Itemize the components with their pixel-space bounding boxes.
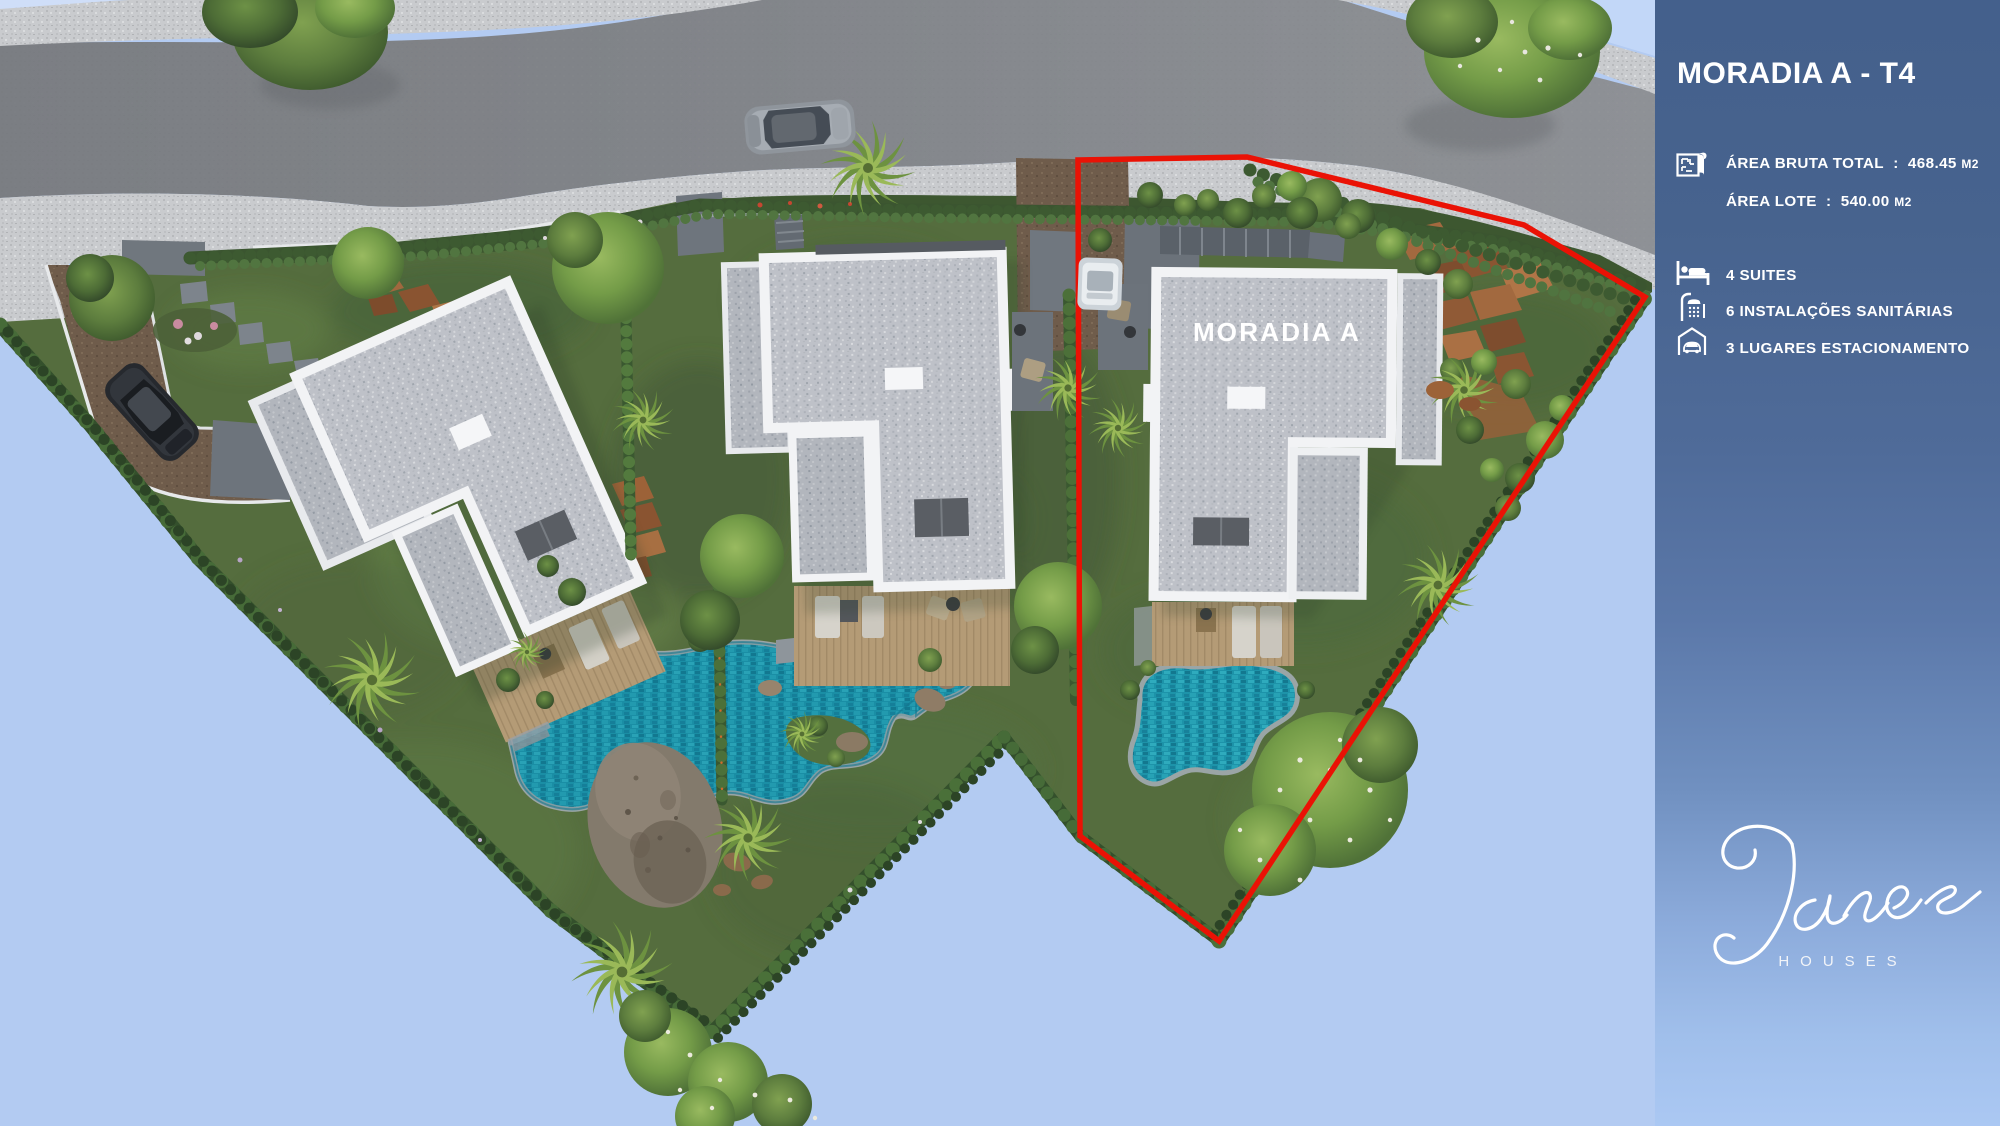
- svg-text:HOUSES: HOUSES: [1778, 953, 1907, 970]
- svg-text:MORADIA A: MORADIA A: [1193, 317, 1361, 347]
